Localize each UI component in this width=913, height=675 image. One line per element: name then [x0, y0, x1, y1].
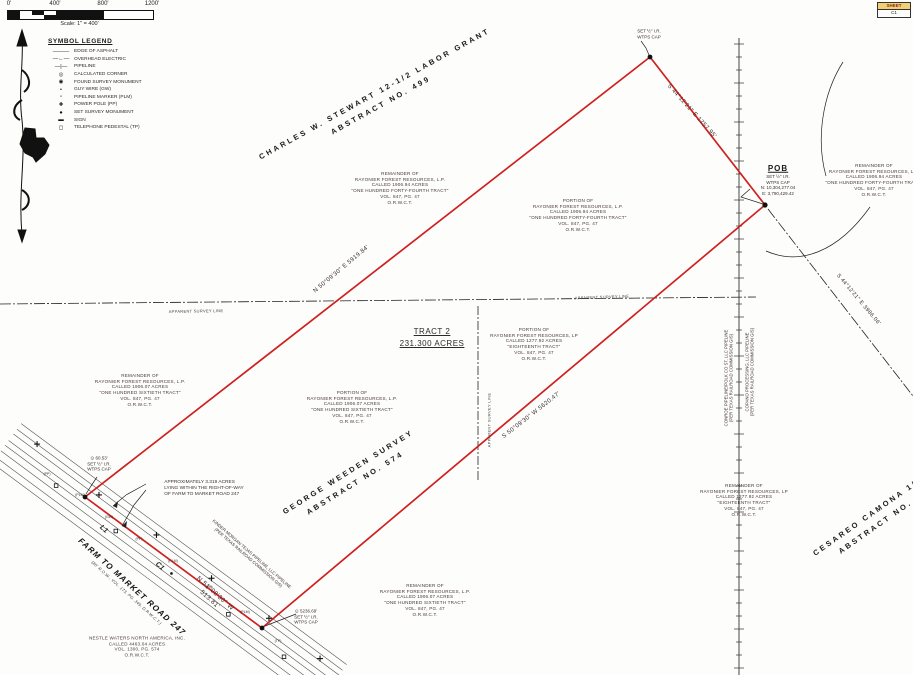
parcel-portion-144: PORTION OFRAYONIER FOREST RESOURCES, L.P…	[529, 198, 626, 232]
legend-label: POWER POLE (PP)	[74, 102, 117, 107]
corner-label-west: ⊙ 60.53'SET ½" I.R.WTPS CAP	[87, 456, 111, 473]
scale-bar-graphic	[7, 10, 154, 20]
leader-north-corner	[641, 41, 649, 55]
pipeline-label-copano: COPANO PROCESSING, LLC PIPELINE(PER TEXA…	[745, 328, 756, 416]
calculated-corner-icon: ◎	[48, 72, 74, 78]
leader-pob	[741, 189, 763, 204]
parcel-portion-18: PORTION OFRAYONIER FOREST RESOURCES, LPC…	[490, 327, 578, 361]
parcel-portion-160: PORTION OFRAYONIER FOREST RESOURCES, L.P…	[307, 390, 397, 424]
pipeline-icon: —|—	[48, 64, 74, 70]
overhead-electric-icon: —←—	[48, 56, 74, 62]
tract-name: TRACT 2	[400, 326, 465, 338]
legend-item: ●SET SURVEY MONUMENT	[48, 109, 188, 117]
corner-monument-south	[260, 626, 265, 631]
parcel-remainder-160-south: REMAINDER OFRAYONIER FOREST RESOURCES, L…	[380, 583, 470, 617]
scale-tick-1200: 1200'	[145, 1, 160, 7]
pob-title: POB	[761, 164, 796, 174]
leader-south-corner	[265, 614, 296, 626]
scale-bar: 0' 400' 800' 1200' Scale: 1" = 400'	[7, 1, 177, 27]
legend-label: EDGE OF ASPHALT	[74, 49, 118, 54]
legend-label: TELEPHONE PEDESTAL (TP)	[74, 125, 140, 130]
survey-plat-page: 0' 400' 800' 1200' Scale: 1" = 400' SHEE…	[0, 0, 913, 675]
telephone-pedestal-icon: ◻	[48, 125, 74, 131]
leader-arrowhead-1	[113, 501, 118, 508]
parcel-remainder-160-west: REMAINDER OFRAYONIER FOREST RESOURCES, L…	[95, 373, 185, 407]
scale-caption: Scale: 1" = 400'	[7, 21, 152, 27]
sign-icon: ▬	[48, 117, 74, 123]
tract-label: TRACT 2 231.300 ACRES	[400, 326, 465, 350]
corner-label-south: ⊙ 5236.69'SET ½" I.R.WTPS CAP	[294, 609, 318, 626]
tract-acreage: 231.300 ACRES	[400, 338, 465, 350]
legend-label: OVERHEAD ELECTRIC	[74, 57, 126, 62]
legend-label: GUY WIRE (GW)	[74, 87, 111, 92]
marker-label-pp3: (PP)	[206, 585, 213, 589]
north-arrow	[14, 30, 49, 242]
scale-tick-labels: 0' 400' 800' 1200'	[7, 1, 177, 10]
scale-bar-checker	[8, 11, 56, 19]
scale-tick-400: 400'	[49, 1, 60, 7]
pob-block: POB SET ½" I.R.WTPS CAPN: 10,304,277.04E…	[761, 164, 796, 197]
power-pole-icon: ✚	[48, 102, 74, 108]
marker-label-pp2: (PP)	[136, 537, 143, 541]
scale-bar-open	[103, 11, 153, 19]
parcel-nestle-waters: NESTLE WATERS NORTH AMERICA, INC.CALLED …	[89, 636, 185, 659]
scale-bar-solid	[56, 11, 104, 19]
symbol-legend: SYMBOL LEGEND ———EDGE OF ASPHALT —←—OVER…	[48, 38, 188, 132]
found-monument-icon: ◉	[48, 79, 74, 85]
sheet-box-title: SHEET	[878, 3, 910, 10]
leader-curve-remainder-east	[766, 207, 870, 257]
legend-item: ▫PIPELINE MARKER (PLM)	[48, 94, 188, 102]
leader-acres-note-1	[113, 484, 146, 506]
legend-item: ◻TELEPHONE PEDESTAL (TP)	[48, 124, 188, 132]
sheet-box-number: C1	[878, 10, 910, 16]
legend-label: CALCULATED CORNER	[74, 72, 128, 77]
scale-tick-800: 800'	[97, 1, 108, 7]
legend-label: FOUND SURVEY MONUMENT	[74, 80, 142, 85]
note-3319-acres: APPROXIMATELY 3.319 ACRESLYING WITHIN TH…	[164, 480, 244, 498]
corner-monument-north	[648, 55, 653, 60]
parcel-remainder-144-east: REMAINDER OFRAYONIER FOREST RESOURCES, L…	[825, 163, 913, 197]
marker-label-tp: (TP)	[275, 639, 282, 643]
parcel-remainder-144: REMAINDER OFRAYONIER FOREST RESOURCES, L…	[351, 171, 448, 205]
marker-label-pp: (PP)	[44, 472, 51, 476]
apparent-survey-line-label-west: APPARENT SURVEY LINE	[169, 308, 224, 314]
sheet-number-box: SHEET C1	[877, 2, 911, 18]
pipeline-label-conroe: CONROE PIPELINE/POLK CO ST, LLC PIPELINE…	[724, 330, 735, 427]
scale-tick-0: 0'	[7, 1, 11, 7]
legend-item: ———EDGE OF ASPHALT	[48, 48, 188, 56]
guy-wire-icon: •	[48, 87, 74, 93]
legend-item: •GUY WIRE (GW)	[48, 86, 188, 94]
legend-label: PIPELINE	[74, 64, 96, 69]
corner-label-north: SET ½" I.R.WTPS CAP	[637, 28, 661, 39]
curve-east-annotation	[821, 62, 843, 176]
marker-label-plm: (PLM)	[75, 493, 85, 497]
parcel-remainder-18-east: REMAINDER OFRAYONIER FOREST RESOURCES, L…	[700, 483, 788, 517]
legend-label: SET SURVEY MONUMENT	[74, 110, 134, 115]
pob-details: SET ½" I.R.WTPS CAPN: 10,304,277.04E: 3,…	[761, 174, 796, 197]
legend-item: —|—PIPELINE	[48, 63, 188, 71]
set-monument-icon: ●	[48, 110, 74, 116]
legend-item: ✚POWER POLE (PP)	[48, 101, 188, 109]
marker-label-gw: (GW)	[105, 515, 113, 519]
legend-item: ▬SIGN	[48, 116, 188, 124]
legend-item: —←—OVERHEAD ELECTRIC	[48, 56, 188, 64]
pipeline-marker-icon: ▫	[48, 94, 74, 100]
marker-label-plm3: (PLM)	[240, 610, 250, 614]
legend-title: SYMBOL LEGEND	[48, 38, 188, 45]
legend-item: ◉FOUND SURVEY MONUMENT	[48, 78, 188, 86]
legend-label: SIGN	[74, 118, 86, 123]
abstract-line-se	[768, 209, 913, 396]
texas-outline	[20, 128, 49, 162]
marker-label-plm2: (PLM)	[168, 559, 178, 563]
edge-of-asphalt-icon: ———	[48, 49, 74, 55]
corner-monument-pob	[762, 202, 767, 207]
legend-item: ◎CALCULATED CORNER	[48, 71, 188, 79]
apparent-survey-line	[0, 297, 756, 304]
legend-label: PIPELINE MARKER (PLM)	[74, 95, 132, 100]
apparent-survey-line-label-vertical: APPARENT SURVEY LINE	[487, 393, 492, 448]
